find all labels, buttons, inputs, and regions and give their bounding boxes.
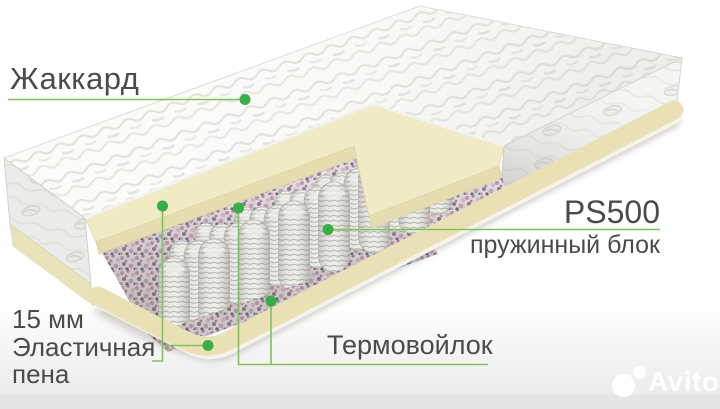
callout-dot-foam-top xyxy=(157,201,168,212)
callout-dot-thermofelt-bottom xyxy=(266,296,277,307)
callout-dot-jacquard xyxy=(240,94,251,105)
label-spring-block-text: пружинный блок xyxy=(470,233,660,257)
avito-logo-circle-small xyxy=(633,366,646,379)
label-jacquard: Жаккард xyxy=(10,63,139,96)
mattress-product-photo: Жаккард PS500 пружинный блок 15 мм Эласт… xyxy=(0,0,720,409)
label-spring-model: PS500 xyxy=(470,197,660,227)
label-thermofelt: Термовойлок xyxy=(327,331,493,359)
avito-logo-circle-large xyxy=(612,374,635,397)
callout-dot-thermofelt-top xyxy=(233,203,244,214)
avito-watermark-text: Avito xyxy=(648,366,719,398)
label-elastic-foam: 15 мм Эластичная пена xyxy=(12,306,155,389)
avito-watermark: Avito xyxy=(608,364,718,404)
callout-dot-spring-block xyxy=(323,224,334,235)
label-spring-block: PS500 пружинный блок xyxy=(470,197,660,257)
callout-dot-foam-bottom xyxy=(203,340,214,351)
